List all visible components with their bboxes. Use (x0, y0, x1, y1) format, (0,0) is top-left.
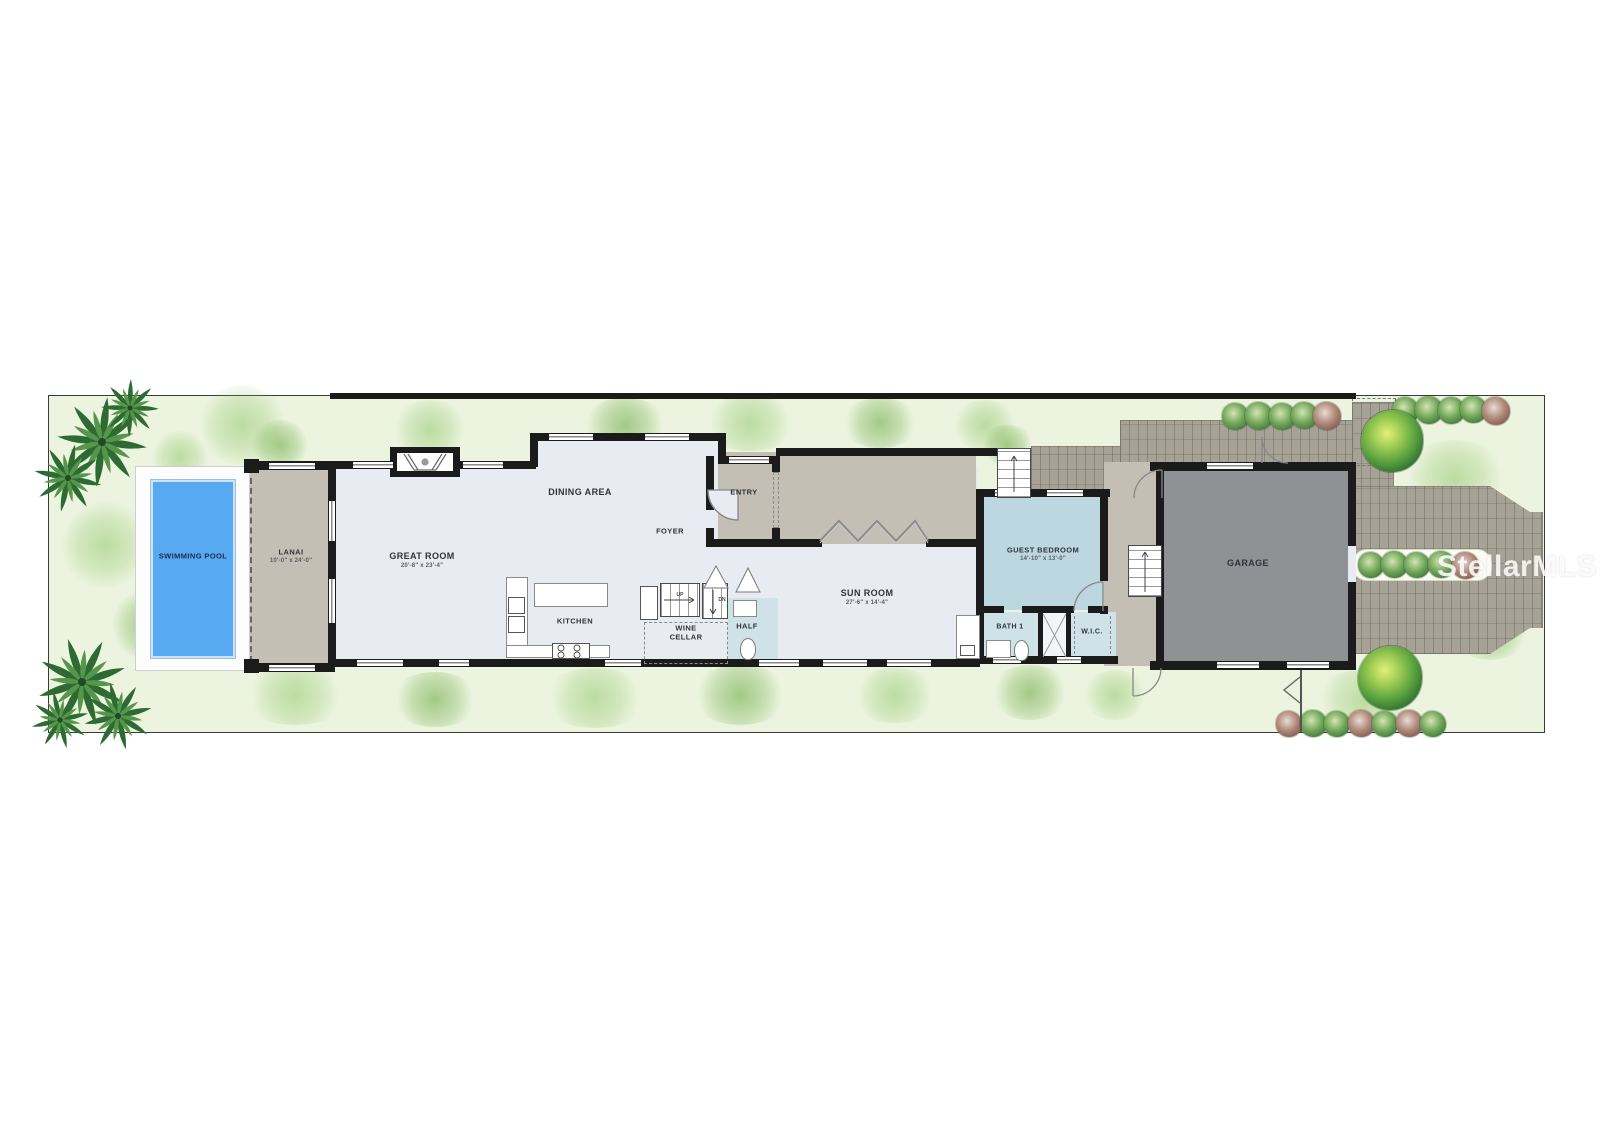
room-swimming-pool-label: SWIMMING POOL (159, 552, 228, 561)
room-great-room-label: GREAT ROOM (389, 551, 454, 561)
stairs-up-label: UP (677, 592, 684, 598)
tree (1358, 646, 1422, 710)
half-bath-toilet (740, 638, 756, 660)
wall-ovens (508, 597, 525, 614)
kitchen-island (534, 583, 608, 607)
room-guest-bedroom-dims: 14'-10" x 13'-0" (1020, 556, 1066, 562)
bath1-sink (986, 640, 1011, 658)
wall-ovens (508, 616, 525, 633)
swimming-pool (150, 479, 236, 659)
room-half-bath-label: HALF (736, 622, 758, 631)
wic-shelf-dash (1074, 616, 1075, 654)
room-entry-label: ENTRY (730, 488, 757, 497)
hall-stairs (1128, 545, 1162, 597)
tree (1361, 410, 1423, 472)
range-stove (552, 643, 590, 659)
room-kitchen-label: KITCHEN (557, 617, 593, 626)
room-garage-label: GARAGE (1227, 558, 1269, 568)
room-sun-room-dims: 27'-6" x 14'-4" (846, 600, 888, 606)
room-foyer-label: FOYER (656, 527, 684, 536)
room-lanai-label: LANAI (279, 548, 304, 557)
top-fence (330, 393, 1356, 399)
dining-floor (532, 439, 722, 479)
room-sun-room-label: SUN ROOM (841, 588, 894, 598)
sunroom-sink (960, 645, 975, 656)
stairs-up (660, 583, 700, 617)
half-bath-sink (733, 600, 757, 617)
room-bath1-label: BATH 1 (996, 624, 1023, 631)
shower-floor (1041, 612, 1068, 658)
room-guest-bedroom-label: GUEST BEDROOM (1007, 546, 1079, 555)
refrigerator (640, 586, 658, 620)
planter-shrub (1404, 552, 1430, 578)
room-wine-cellar-label: WINE CELLAR (660, 624, 712, 641)
lanai-screen (250, 478, 252, 662)
room-great-room-dims: 20'-8" x 23'-4" (401, 563, 443, 569)
garage-floor (1164, 470, 1350, 666)
floor-plan-page: SWIMMING POOL LANAI 10'-0" x 24'-0" GREA… (0, 0, 1600, 1148)
rear-deck (718, 452, 976, 544)
deck-exterior-stairs (997, 448, 1031, 498)
room-wic-label: W.I.C. (1081, 629, 1102, 636)
lanai-floor (250, 469, 332, 671)
wic-shelf-dash (1110, 616, 1111, 654)
room-dining-area-label: DINING AREA (548, 487, 612, 497)
room-lanai-dims: 10'-0" x 24'-0" (270, 558, 312, 564)
bath1-toilet (1014, 640, 1029, 661)
mls-watermark: StellarMLS (1437, 550, 1597, 584)
stairs-dn-label: DN (718, 597, 725, 603)
